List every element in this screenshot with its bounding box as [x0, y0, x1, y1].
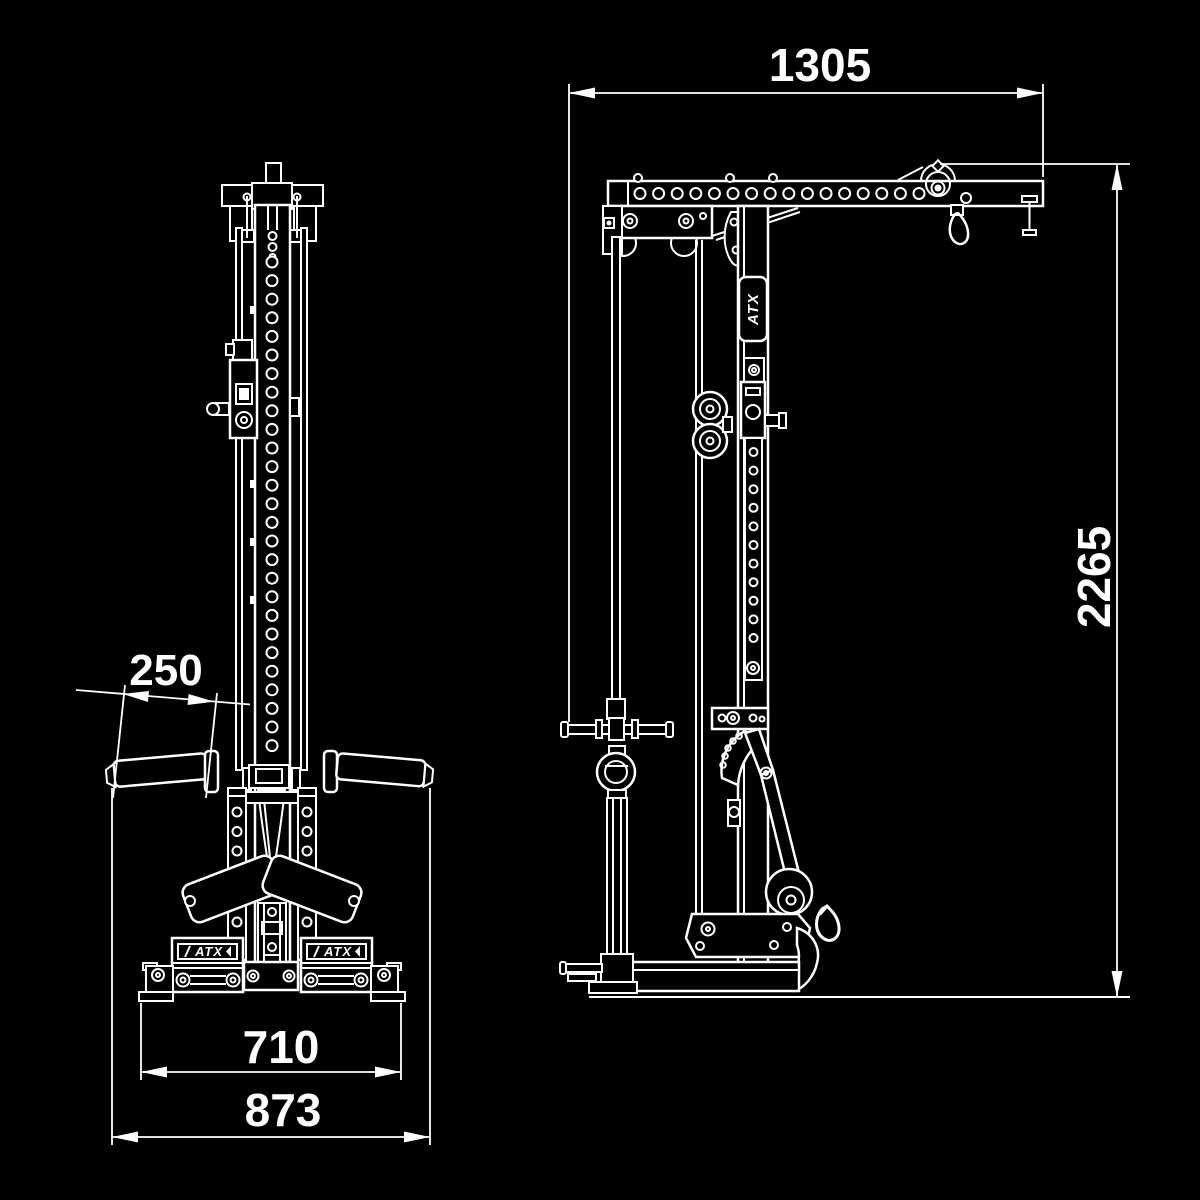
bottom-linkage-plate — [686, 914, 810, 957]
technical-drawing: 1305 2265 250 710 873 ATX ATX ATX — [0, 0, 1200, 1200]
side-lower-mechanism — [258, 903, 286, 963]
base-center-block — [244, 962, 298, 990]
guide-ring — [597, 753, 635, 791]
carriage-knob — [207, 403, 219, 415]
side-guide-rod-right — [301, 228, 307, 770]
side-handle-hub — [243, 765, 300, 790]
roller-pad — [766, 869, 812, 915]
atx-logo-column-plate: ATX — [745, 293, 762, 326]
dim-710-label: 710 — [243, 1021, 320, 1073]
blueprint-canvas: 1305 2265 250 710 873 ATX ATX ATX — [0, 0, 1200, 1200]
side-guide-rod-left — [236, 228, 242, 770]
pivot-bracket — [712, 708, 768, 729]
adjustment-strip — [745, 438, 762, 680]
dim-250-label: 250 — [129, 646, 202, 695]
atx-logo-left-platform: ATX — [194, 944, 223, 959]
dim-2265-label: 2265 — [1068, 526, 1120, 628]
atx-logo-right-platform: ATX — [323, 944, 352, 959]
dim-873-label: 873 — [245, 1084, 322, 1136]
dim-1305-label: 1305 — [769, 39, 871, 91]
front-base-beam — [627, 962, 799, 991]
